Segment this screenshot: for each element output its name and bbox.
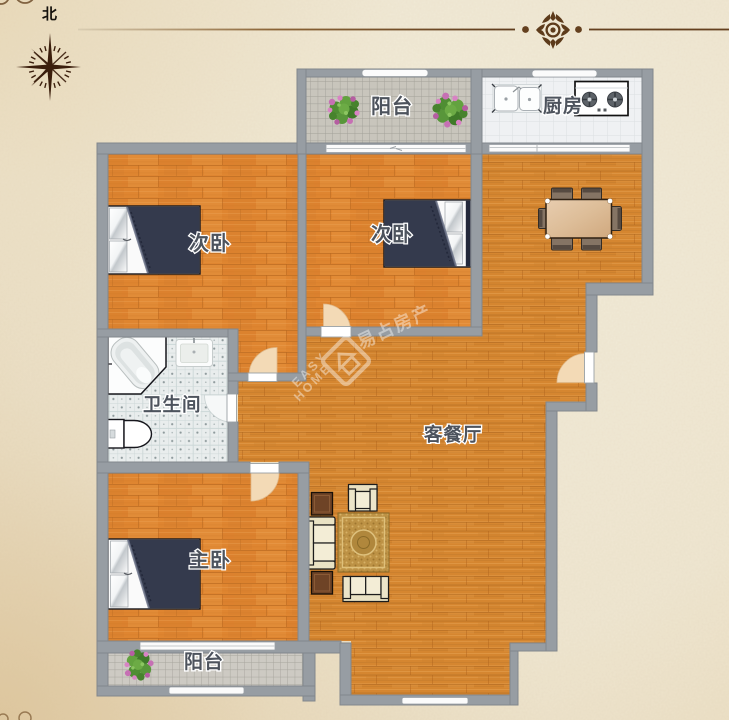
svg-text:卫生间: 卫生间 [143,394,202,415]
svg-text:阳台: 阳台 [371,94,413,118]
svg-text:次卧: 次卧 [189,231,231,255]
svg-text:阳台: 阳台 [184,650,224,673]
svg-text:厨房: 厨房 [543,94,583,117]
svg-text:北: 北 [42,6,57,23]
svg-text:主卧: 主卧 [189,548,231,572]
svg-text:次卧: 次卧 [371,222,413,246]
svg-text:客餐厅: 客餐厅 [424,424,483,445]
